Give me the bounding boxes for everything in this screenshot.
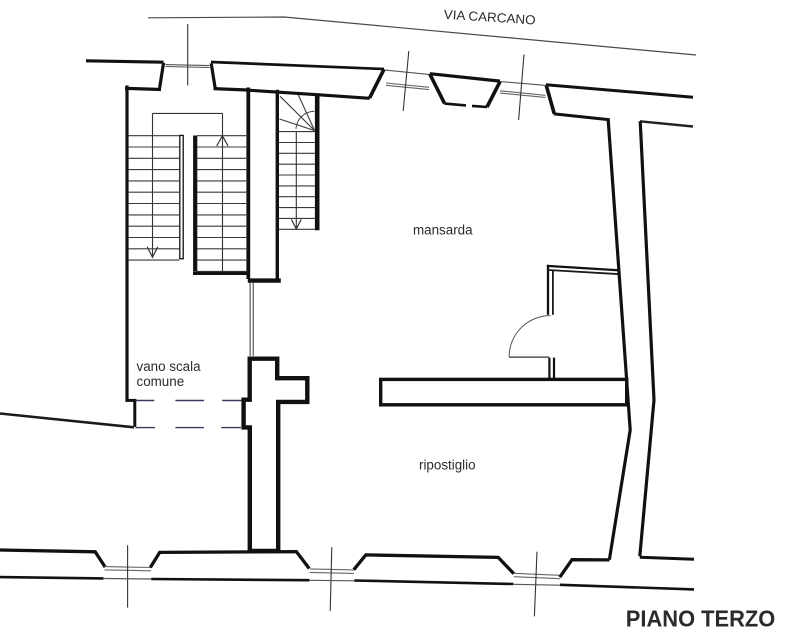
svg-text:mansarda: mansarda: [413, 223, 473, 238]
svg-text:comune: comune: [137, 374, 185, 389]
svg-text:PIANO TERZO: PIANO TERZO: [626, 605, 776, 631]
svg-text:vano scala: vano scala: [137, 359, 202, 374]
svg-text:ripostiglio: ripostiglio: [419, 458, 476, 473]
